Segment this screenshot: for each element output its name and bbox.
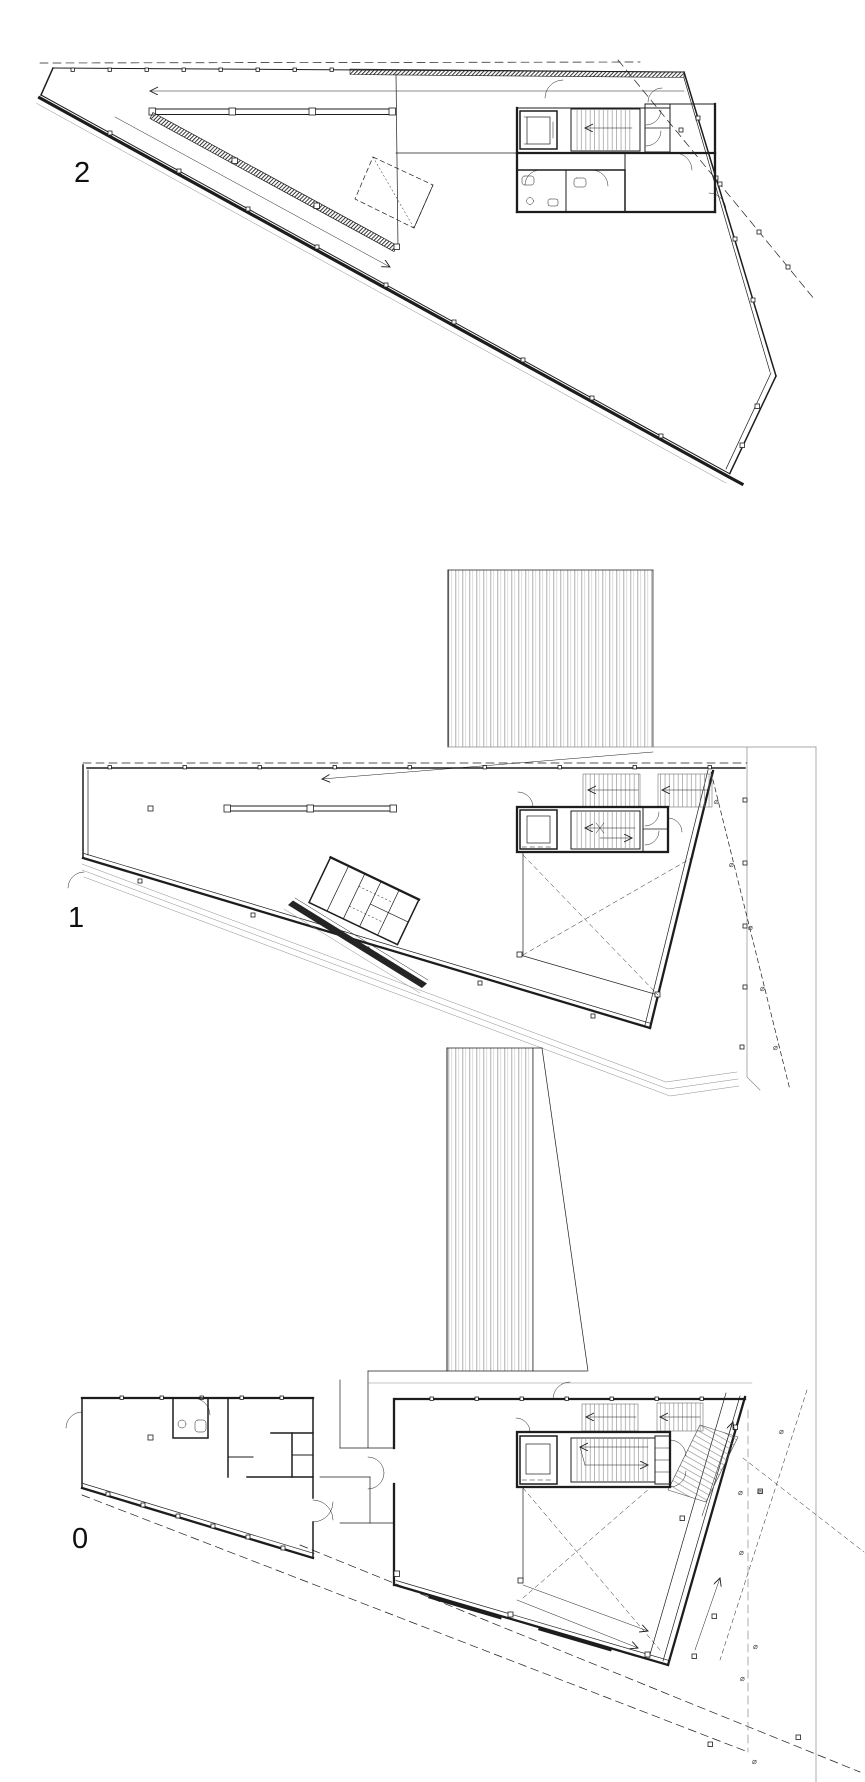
- floor-label-1: 1: [68, 902, 84, 934]
- tree-symbols: ⌀ ⌀ ⌀ ⌀ ⌀ ⌀ ⌀: [738, 1427, 784, 1766]
- interior-wall: [396, 74, 398, 247]
- ramp-hatched-wall: [115, 113, 400, 268]
- door-arc: [553, 1382, 570, 1399]
- floor-plan-2: 2: [37, 60, 815, 484]
- stair: [571, 109, 640, 151]
- elevator: [520, 1436, 557, 1484]
- stair: [571, 811, 640, 849]
- door-arc: [670, 1440, 686, 1456]
- tree-symbol: ⌀: [714, 797, 719, 806]
- ramp-hatch: [582, 1403, 703, 1431]
- long-stair: [668, 1422, 738, 1516]
- tree-symbol: ⌀: [739, 1548, 744, 1557]
- door-arc: [516, 1418, 530, 1432]
- building-outline: [37, 68, 776, 484]
- site-boundary-dashed: [82, 1390, 864, 1772]
- door-arc: [68, 872, 84, 888]
- tree-symbol: ⌀: [779, 1427, 784, 1436]
- floor-label-0: 0: [72, 1523, 88, 1555]
- tree-symbol: ⌀: [748, 923, 753, 932]
- bridge-band: [368, 1048, 752, 1448]
- site-boundary-dashed: [40, 60, 815, 300]
- storage-cells: [643, 807, 668, 852]
- door-arc: [368, 1457, 384, 1473]
- tree-symbol: ⌀: [729, 860, 734, 869]
- tree-symbol: ⌀: [753, 1642, 758, 1651]
- facade-glazing-segment: [430, 1597, 500, 1618]
- roof-opening-dashed: [355, 157, 433, 228]
- facade-tick-squares: [71, 68, 790, 448]
- bridge-band: [448, 570, 653, 747]
- door-arcs: [545, 80, 726, 210]
- tree-symbol: ⌀: [757, 1487, 762, 1496]
- door-arc: [368, 1473, 384, 1489]
- facade-glazing-segment: [540, 1629, 610, 1650]
- door-arc: [518, 792, 533, 807]
- floor-label-2: 2: [74, 157, 90, 189]
- stair: [571, 1438, 655, 1482]
- storage-cells: [645, 104, 670, 152]
- door-arc: [66, 1412, 82, 1428]
- connecting-corridor: [320, 1380, 394, 1523]
- door-arc: [313, 1502, 333, 1522]
- gallery-balustrade: [149, 108, 396, 115]
- tree-symbol: ⌀: [773, 1043, 778, 1052]
- column-square: [148, 1435, 153, 1440]
- tree-symbol: ⌀: [752, 1757, 757, 1766]
- drawing-canvas: 2 ⌀ ⌀ ⌀ ⌀ ⌀: [0, 0, 865, 1782]
- tree-symbol: ⌀: [740, 1674, 745, 1683]
- wc-room: [173, 1398, 210, 1438]
- column-square: [148, 806, 153, 811]
- storage-cells: [655, 1436, 670, 1484]
- floor-plan-0: ⌀ ⌀ ⌀ ⌀ ⌀ ⌀ ⌀ 0: [66, 1048, 864, 1772]
- partition-walls: [228, 1398, 313, 1477]
- elevator: [520, 810, 557, 849]
- core-block: [517, 80, 726, 212]
- architectural-drawing-sheet: 2 ⌀ ⌀ ⌀ ⌀ ⌀: [0, 0, 865, 1782]
- building-outline: [68, 763, 747, 1028]
- left-building: [66, 1396, 333, 1558]
- void-hall: [517, 852, 695, 997]
- door-arc: [313, 1500, 333, 1520]
- north-facade-hatched-wall: [350, 69, 684, 78]
- elevator: [520, 111, 557, 149]
- door-arc: [668, 818, 682, 832]
- ramp-hatch: [583, 774, 712, 807]
- tree-symbol: ⌀: [760, 984, 765, 993]
- tree-symbol: ⌀: [738, 1488, 743, 1497]
- wc-room: [517, 153, 625, 212]
